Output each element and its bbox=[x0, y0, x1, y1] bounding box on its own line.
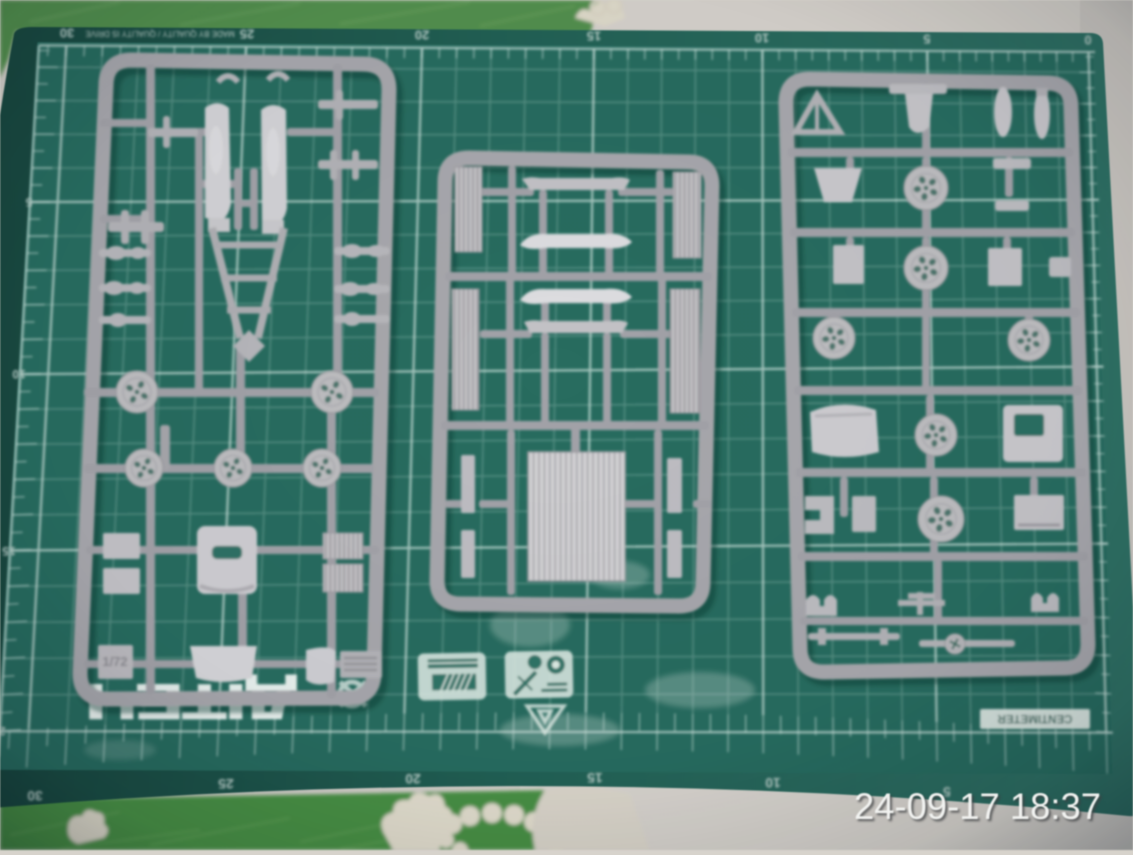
svg-text:24-09-17 18:37: 24-09-17 18:37 bbox=[854, 786, 1101, 827]
